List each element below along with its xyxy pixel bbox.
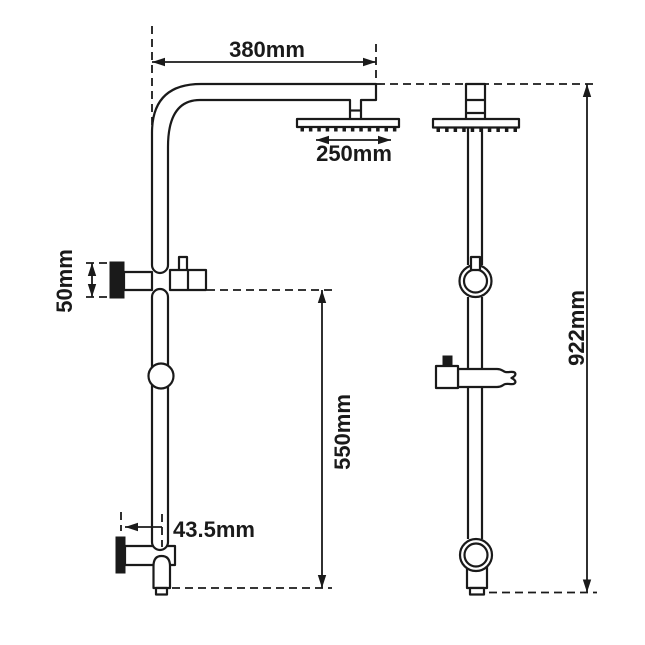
rail-cap-upper bbox=[152, 265, 168, 273]
bottom-knob-side bbox=[460, 539, 492, 571]
top-wall-bracket bbox=[110, 257, 206, 298]
dim-bracket-size-label: 50mm bbox=[52, 249, 77, 313]
arrowhead-left-icon bbox=[152, 58, 165, 66]
arrowhead-down-icon bbox=[583, 580, 591, 593]
dim-arm-reach-label: 380mm bbox=[229, 37, 305, 62]
shower-head-plate-side bbox=[433, 119, 519, 128]
dim-bottom-offset: 43.5mm bbox=[121, 512, 255, 547]
arrowhead-down-icon bbox=[88, 284, 96, 297]
shower-head-front-view bbox=[297, 119, 399, 132]
arrowhead-down-icon bbox=[318, 575, 326, 588]
dim-overall-height: 922mm bbox=[489, 84, 597, 593]
diverter-knob-side bbox=[460, 257, 492, 297]
ceiling-stem bbox=[466, 84, 485, 120]
dim-bracket-size: 50mm bbox=[52, 249, 110, 313]
outlet-nub bbox=[156, 588, 167, 595]
handset-cradle bbox=[458, 369, 515, 387]
dim-lower-rail-span-label: 550mm bbox=[330, 394, 355, 470]
dim-lower-rail-span: 550mm bbox=[172, 290, 355, 588]
shower-head-side-view bbox=[433, 119, 519, 132]
shower-head-plate bbox=[297, 119, 399, 127]
dim-bottom-offset-label: 43.5mm bbox=[173, 517, 255, 542]
diverter-knob-front bbox=[464, 270, 487, 293]
arrowhead-left-icon bbox=[125, 523, 138, 531]
diverter-tab-icon bbox=[471, 257, 480, 270]
dim-overall-height-label: 922mm bbox=[564, 290, 589, 366]
bracket-body bbox=[124, 272, 152, 290]
arrowhead-up-icon bbox=[583, 84, 591, 97]
hose-outlet bbox=[154, 556, 171, 588]
top-flange-icon bbox=[110, 262, 124, 298]
dim-head-diameter: 250mm bbox=[316, 136, 392, 166]
rail-cap-lower bbox=[152, 289, 168, 297]
arrowhead-up-icon bbox=[88, 263, 96, 276]
slider-knob bbox=[149, 364, 174, 389]
bottom-flange-icon bbox=[116, 537, 125, 573]
dim-arm-reach: 380mm bbox=[152, 26, 376, 130]
technical-drawing-canvas: 380mm 250mm 50mm 550mm bbox=[0, 0, 645, 645]
inlet-nub bbox=[470, 588, 484, 595]
holder-tab-icon bbox=[443, 356, 452, 366]
arrowhead-right-icon bbox=[363, 58, 376, 66]
head-stem-side bbox=[466, 84, 485, 120]
bottom-knob-front bbox=[465, 544, 488, 567]
shower-rail-dimension-drawing: 380mm 250mm 50mm 550mm bbox=[0, 0, 645, 645]
arrowhead-up-icon bbox=[318, 290, 326, 303]
holder-block bbox=[436, 366, 458, 388]
dimension-annotations: 380mm 250mm 50mm 550mm bbox=[52, 26, 597, 593]
dim-head-diameter-label: 250mm bbox=[316, 141, 392, 166]
rail-side bbox=[468, 128, 482, 539]
handset-holder bbox=[436, 356, 515, 388]
